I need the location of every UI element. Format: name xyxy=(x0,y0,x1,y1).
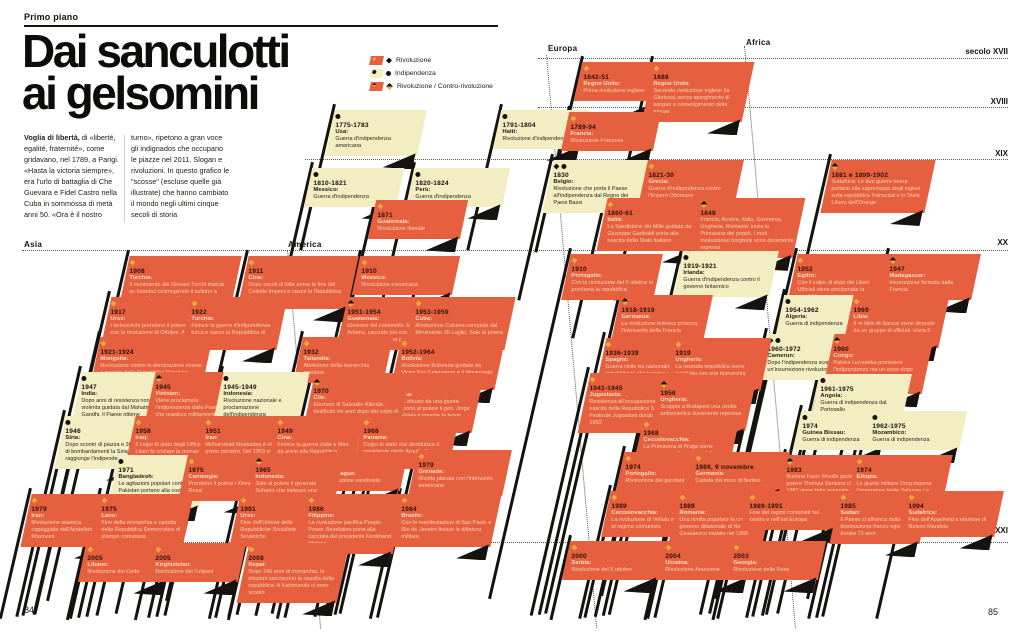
flag-year: 1951 xyxy=(205,428,283,435)
revolution-diamond-icon xyxy=(308,498,314,504)
event-flag: 1910Messico:Rivoluzione messicana xyxy=(352,256,460,295)
flag-place: Serbia: xyxy=(571,560,657,567)
flag-pennant xyxy=(382,153,415,169)
event-flag: 1881 e 1899-1902Sudafrica: Le due guerre… xyxy=(820,160,935,213)
flag-place: Sudafrica: xyxy=(908,510,994,517)
flag-year: 1775-1783 xyxy=(335,122,417,129)
revolution-diamond-icon xyxy=(583,66,589,72)
flag-year: 1917 xyxy=(110,309,195,316)
flag-place: Cuba: xyxy=(415,316,505,323)
flag-icons xyxy=(308,496,394,505)
revolution-diamond-icon xyxy=(205,420,211,426)
flag-place: Francia: xyxy=(570,131,652,138)
flag-content: 1975Laos:Fine della monarchia e nascita … xyxy=(101,496,183,541)
revolution-diamond-icon xyxy=(191,301,197,307)
flag-content: 1775-1783Usa:Guerra d'indipendenza ameri… xyxy=(335,112,417,150)
event-flag: 1947Madagascar:Insurrezione fermata dall… xyxy=(879,254,981,300)
flag-icons xyxy=(223,374,299,383)
counter-revolution-half-diamond-icon xyxy=(833,337,840,344)
flag-icons xyxy=(872,413,958,422)
flag-year: 1932 xyxy=(303,349,383,356)
flag-text: Fine dell'Apartheid e elezione di Nelson… xyxy=(908,517,994,531)
flag-place: Egitto: xyxy=(797,273,879,280)
flag-icons xyxy=(363,418,449,427)
flag-icons xyxy=(65,418,141,427)
flag-content: 1789-94Francia:Rivoluzione Francese xyxy=(570,114,652,145)
flag-icons xyxy=(553,162,639,171)
flag-icons xyxy=(155,374,229,383)
flag-place: Messico: xyxy=(361,275,451,282)
flag-year: 1919 xyxy=(675,350,761,357)
flag-text: Rivoluzione Francese xyxy=(570,138,652,145)
event-flag: 1975Laos:Fine della monarchia e nascita … xyxy=(90,494,193,547)
flag-year: 1994 xyxy=(908,503,994,510)
flag-content: 1919-1921Irlanda:Guerra d'indipendenza c… xyxy=(683,253,769,291)
flag-icons xyxy=(889,256,971,265)
flag-place: Messico: xyxy=(313,187,395,194)
revolution-diamond-icon xyxy=(277,420,283,426)
flag-icons xyxy=(377,202,459,211)
flag-place: Turchia: xyxy=(129,275,231,282)
flag-pennant xyxy=(623,577,656,593)
flag-place: Angola: xyxy=(820,393,902,400)
flag-icons xyxy=(820,376,902,385)
flag-year: 1989, 9 novembre xyxy=(695,464,781,471)
flag-content: 2005Kirghizistan:Rivoluzione dei Tulipan… xyxy=(155,545,237,576)
flag-text: La rivoluzione tedesca provoca l'interve… xyxy=(621,321,703,335)
flag-place: Urss: xyxy=(110,316,195,323)
flag-icons xyxy=(571,543,657,552)
flag-place: Indonesia: xyxy=(255,474,333,481)
flag-year: 1984 xyxy=(401,506,491,513)
flag-pennant xyxy=(456,544,489,560)
independence-circle-icon xyxy=(802,415,807,420)
event-flag: 2000Serbia:Rivoluzione del 5 ottobre xyxy=(562,541,666,580)
independence-circle-icon xyxy=(683,255,688,260)
revolution-diamond-icon xyxy=(605,342,611,348)
flag-icons xyxy=(733,543,817,552)
flag-content: 2003Georgia:Rivoluzione delle Rose xyxy=(733,543,817,574)
flag-pennant xyxy=(242,347,275,363)
flag-place: Belgio: xyxy=(553,179,639,186)
flag-year: 1952-1964 xyxy=(401,349,495,356)
flag-icons xyxy=(797,256,879,265)
revolution-diamond-icon xyxy=(129,260,135,266)
flag-place: Regno Unito: xyxy=(653,81,743,88)
counter-revolution-half-diamond-icon xyxy=(786,458,793,465)
flag-content: 1918-1919Germania:La rivoluzione tedesca… xyxy=(621,297,703,335)
revolution-diamond-icon xyxy=(856,459,862,465)
flag-text: Rivolta placata con l'intervento america… xyxy=(418,476,502,490)
flag-content: 1820-1824Perù:Guerra d'indipendenza xyxy=(415,170,501,201)
revolution-diamond-icon xyxy=(155,547,161,553)
revolution-diamond-icon xyxy=(679,495,685,501)
flag-place: Ungheria: xyxy=(675,357,761,364)
flag-year: 1881 e 1899-1902 xyxy=(831,172,925,179)
flag-place: Nepal: xyxy=(248,562,338,569)
flag-place: Panama: xyxy=(363,435,449,442)
flag-text: Insurrezione fermata dalla Francia xyxy=(889,280,971,294)
flag-content: 1962-1975Mozambico:Guerra di indipendenz… xyxy=(872,413,958,444)
flag-text: Guerra d'indipendenza contro il governo … xyxy=(683,277,769,291)
flag-year: 1965 xyxy=(255,467,333,474)
flag-icons xyxy=(205,418,283,427)
flag-text: Dopo 240 anni di monarchia, le elezioni … xyxy=(248,569,338,597)
flag-text: Con le manifestazioni di San Paolo e Rio… xyxy=(401,520,491,541)
flag-year: 2005 xyxy=(155,555,237,562)
flag-icons xyxy=(853,297,939,306)
flag-content: 1688Regno Unito:Seconda rivoluzione ingl… xyxy=(653,64,743,116)
flag-content: 1989, 9 novembreGermania:Caduta del muro… xyxy=(695,454,781,485)
revolution-diamond-icon xyxy=(571,545,577,551)
flag-year: 1945-1949 xyxy=(223,384,299,391)
flag-text: La Spedizione dei Mille guidata da Giuse… xyxy=(607,224,697,245)
flag-year: 1970 xyxy=(313,388,399,395)
flag-year: 1975 xyxy=(188,467,258,474)
flag-text: Sudafrica: Le due guerre boere portano a… xyxy=(831,179,925,207)
flag-pennant xyxy=(707,119,740,135)
flag-icons xyxy=(700,200,794,209)
flag-icons xyxy=(401,496,491,505)
counter-revolution-half-diamond-icon xyxy=(347,300,354,307)
flag-icons xyxy=(361,258,451,267)
independence-circle-icon xyxy=(415,172,420,177)
counter-revolution-half-diamond-icon xyxy=(700,201,707,208)
flag-place: Mozambico: xyxy=(872,430,958,437)
flag-icons xyxy=(191,299,277,308)
flag-text: Guerra d'indipendenza americana xyxy=(335,136,417,150)
flag-icons xyxy=(100,339,202,348)
revolution-diamond-icon xyxy=(675,342,681,348)
event-flag: 2005Kirghizistan:Rivoluzione dei Tulipan… xyxy=(146,543,246,582)
flag-icons xyxy=(643,420,729,429)
flag-year: 1962-1975 xyxy=(872,423,958,430)
flag-icons xyxy=(653,64,743,73)
flag-icons xyxy=(155,545,237,554)
revolution-diamond-icon xyxy=(908,495,914,501)
revolution-diamond-icon xyxy=(135,420,141,426)
flag-year: 1952 xyxy=(797,266,879,273)
flag-place: Mongolia: xyxy=(100,356,202,363)
event-flag: 1989, 9 novembreGermania:Caduta del muro… xyxy=(686,452,790,491)
independence-circle-icon xyxy=(561,164,566,169)
flag-place: Etiopia: xyxy=(856,474,942,481)
flag-year: 1975 xyxy=(101,506,183,513)
flag-year: 1968 xyxy=(363,428,449,435)
flag-content: 1945-1949Indonesia:Rivoluzione nazionale… xyxy=(223,374,299,419)
revolution-diamond-icon xyxy=(648,164,654,170)
flag-place: Cile: xyxy=(313,395,399,402)
revolution-diamond-icon xyxy=(248,547,254,553)
flag-place: Ungheria: xyxy=(660,397,746,404)
counter-revolution-half-diamond-icon xyxy=(831,163,838,170)
flag-content: 1810-1821Messico:Guerra d'indipendenza xyxy=(313,170,395,201)
flag-text: Rivoluzione messicana xyxy=(361,282,451,289)
independence-circle-icon xyxy=(223,376,228,381)
flag-year: 1968 xyxy=(643,430,729,437)
flag-pennant xyxy=(467,204,500,220)
flag-icons xyxy=(248,258,348,267)
revolution-diamond-icon xyxy=(570,116,576,122)
flag-place: Tailandia: xyxy=(303,356,383,363)
flag-year: 1960 xyxy=(833,346,923,353)
flag-content: 1989-1991Fine dei regimi comunisti nel c… xyxy=(749,493,835,524)
flag-year: 1922 xyxy=(191,309,277,316)
independence-circle-icon xyxy=(313,172,318,177)
independence-circle-icon xyxy=(81,376,86,381)
flag-text: Fine dei regimi comunisti nel centro e n… xyxy=(749,510,835,524)
flag-place: Laos: xyxy=(101,513,183,520)
flag-place: India: xyxy=(81,391,159,398)
flag-place: Bolivia: xyxy=(401,356,495,363)
independence-circle-icon xyxy=(335,114,340,119)
counter-revolution-half-diamond-icon xyxy=(621,298,628,305)
flag-year: 1949 xyxy=(277,428,353,435)
flag-year: 1871 xyxy=(377,212,459,219)
flag-content: 1979Grenada:Rivolta placata con l'interv… xyxy=(418,452,502,490)
flag-place: Grecia: xyxy=(648,179,734,186)
flag-icons xyxy=(571,256,653,265)
event-flag: 1919-1921Irlanda:Guerra d'indipendenza c… xyxy=(673,251,779,297)
event-flag: 1979Grenada:Rivolta placata con l'interv… xyxy=(408,450,512,496)
counter-revolution-half-diamond-icon xyxy=(313,379,320,386)
flag-year: 1986 xyxy=(308,506,394,513)
flag-year: 1688 xyxy=(653,74,743,81)
flag-icons xyxy=(695,454,781,463)
event-flag: 1789-94Francia:Rivoluzione Francese xyxy=(561,112,661,151)
flag-year: 1945 xyxy=(155,384,229,391)
flag-text: Con la rivoluzione del 5 ottobre si proc… xyxy=(571,280,653,294)
flag-place: Irlanda: xyxy=(683,270,769,277)
flag-year: 1961-1975 xyxy=(820,386,902,393)
revolution-diamond-icon xyxy=(418,454,424,460)
flag-content: 1871Guatemala:Rivoluzione liberale xyxy=(377,202,459,233)
revolution-diamond-icon xyxy=(101,498,107,504)
flag-icons xyxy=(277,418,353,427)
flag-place: Cina: xyxy=(248,275,348,282)
flag-pennant xyxy=(890,210,923,226)
independence-circle-icon xyxy=(820,378,825,383)
flag-icons xyxy=(313,170,395,179)
revolution-diamond-icon xyxy=(840,495,846,501)
flag-year: 1946 xyxy=(65,428,141,435)
flag-place: Cecoslovacchia: xyxy=(643,437,729,444)
flag-year: 1830 xyxy=(553,172,639,179)
flag-year: 1810-1821 xyxy=(313,180,395,187)
flag-icons xyxy=(621,297,703,306)
flag-content: 1994Sudafrica:Fine dell'Apartheid e elez… xyxy=(908,493,994,531)
flag-icons xyxy=(648,162,734,171)
event-flag: 1910Portogallo:Con la rivoluzione del 5 … xyxy=(561,254,663,300)
flag-icons xyxy=(129,258,231,267)
flag-year: 1910 xyxy=(361,268,451,275)
flag-icons xyxy=(831,162,925,171)
flag-place: Madagascar: xyxy=(889,273,971,280)
flag-year: 1921-1924 xyxy=(100,349,202,356)
event-flag: 2003Georgia:Rivoluzione delle Rose xyxy=(724,541,826,580)
counter-revolution-half-diamond-icon xyxy=(660,381,667,388)
flag-icons xyxy=(335,112,417,121)
revolution-diamond-icon xyxy=(240,498,246,504)
revolution-diamond-icon xyxy=(303,341,309,347)
flag-icons xyxy=(749,493,835,502)
event-flag: 1775-1783Usa:Guerra d'indipendenza ameri… xyxy=(325,110,427,156)
flag-place: Kirghizistan: xyxy=(155,562,237,569)
revolution-diamond-icon xyxy=(248,260,254,266)
flag-pennant xyxy=(885,541,918,557)
flag-place: Italia: xyxy=(607,217,697,224)
independence-circle-icon xyxy=(502,114,507,119)
flag-icons xyxy=(313,378,399,387)
flag-content: 1910Messico:Rivoluzione messicana xyxy=(361,258,451,289)
flag-year: 1908 xyxy=(129,268,231,275)
flag-icons xyxy=(683,253,769,262)
counter-revolution-half-diamond-icon xyxy=(889,257,896,264)
flag-place: Congo: xyxy=(833,353,923,360)
magazine-spread: Primo piano Dai sanculotti ai gelsomini … xyxy=(0,0,1024,632)
flag-text: Francia, Austria, Italia, Germania, Ungh… xyxy=(700,217,794,252)
revolution-diamond-icon xyxy=(607,202,613,208)
flag-pennant xyxy=(959,534,992,550)
flag-place: Usa: xyxy=(335,129,417,136)
flag-icons xyxy=(570,114,652,123)
flag-year: 2000 xyxy=(571,553,657,560)
flag-year: 1848 xyxy=(700,210,794,217)
revolution-diamond-icon xyxy=(110,301,116,307)
flag-text: Fine della monarchia e nascita della Rep… xyxy=(101,520,183,541)
flag-content: 1961-1975Angola:Guerra di indipendenza d… xyxy=(820,376,902,414)
revolution-diamond-icon xyxy=(643,422,649,428)
event-flags-layer: 1642-51Regno Unito:Prima rivoluzione ing… xyxy=(0,0,1024,632)
revolution-diamond-icon xyxy=(695,456,701,462)
flag-year: 1910 xyxy=(571,266,653,273)
event-flag: 1984Brasile:Con le manifestazioni di San… xyxy=(390,494,501,547)
event-flag: 1989-1991Fine dei regimi comunisti nel c… xyxy=(740,491,844,530)
flag-text: Rivoluzione del 5 ottobre xyxy=(571,567,657,574)
revolution-diamond-icon xyxy=(625,456,631,462)
flag-icons xyxy=(415,170,501,179)
flag-year: 1820-1824 xyxy=(415,180,501,187)
flag-icons xyxy=(248,545,338,554)
flag-content: 2008Nepal:Dopo 240 anni di monarchia, le… xyxy=(248,545,338,597)
flag-year: 1860-61 xyxy=(607,210,697,217)
flag-place: Brasile: xyxy=(401,513,491,520)
revolution-diamond-icon xyxy=(611,495,617,501)
event-flag: 1871Guatemala:Rivoluzione liberale xyxy=(368,200,468,239)
flag-icons xyxy=(31,496,109,505)
flag-year: 1974 xyxy=(856,467,942,474)
flag-text: Seconda rivoluzione inglese (la Gloriosa… xyxy=(653,88,743,116)
revolution-diamond-icon xyxy=(853,299,859,305)
independence-circle-icon xyxy=(785,299,790,304)
flag-year: 1947 xyxy=(81,384,159,391)
flag-content: 1984Brasile:Con le manifestazioni di San… xyxy=(401,496,491,541)
flag-icons xyxy=(255,457,333,466)
revolution-diamond-icon xyxy=(665,545,671,551)
flag-year: 1918-1919 xyxy=(621,307,703,314)
revolution-diamond-icon xyxy=(749,495,755,501)
flag-place: Indonesia: xyxy=(223,391,299,398)
flag-icons xyxy=(833,336,923,345)
flag-icons xyxy=(908,493,994,502)
flag-year: 1919-1921 xyxy=(683,263,769,270)
revolution-diamond-icon xyxy=(653,66,659,72)
revolution-diamond-icon xyxy=(589,377,595,383)
flag-icons xyxy=(401,339,495,348)
revolution-diamond-icon xyxy=(571,258,577,264)
flag-icons xyxy=(660,380,746,389)
flag-text: Caduta del muro di Berlino xyxy=(695,478,781,485)
event-flag: 1962-1975Mozambico:Guerra di indipendenz… xyxy=(863,411,967,450)
revolution-diamond-icon xyxy=(553,164,559,170)
revolution-diamond-icon xyxy=(188,459,194,465)
flag-text: Rivoluzione dei Tulipani xyxy=(155,569,237,576)
revolution-diamond-icon xyxy=(401,341,407,347)
flag-icons xyxy=(418,452,502,461)
flag-content: 1947Madagascar:Insurrezione fermata dall… xyxy=(889,256,971,294)
flag-content: 1932Tailandia:Abolizione della monarchia… xyxy=(303,339,383,377)
flag-icons xyxy=(675,340,761,349)
flag-text: Guerra di indipendenza xyxy=(872,437,958,444)
flag-place: Libia: xyxy=(853,314,939,321)
flag-text: Rivoluzione liberale xyxy=(377,226,459,233)
independence-circle-icon xyxy=(65,420,70,425)
flag-content: 1986Filippine:La rivoluzione pacifica Pe… xyxy=(308,496,394,548)
flag-pennant xyxy=(302,600,335,616)
revolution-diamond-icon xyxy=(415,301,421,307)
flag-pennant xyxy=(734,294,767,310)
flag-content: 1821-30Grecia:Guerra d'indipendenza cont… xyxy=(648,162,734,200)
flag-place: Germania: xyxy=(695,471,781,478)
counter-revolution-half-diamond-icon xyxy=(155,375,162,382)
flag-content: 1848Francia, Austria, Italia, Germania, … xyxy=(700,200,794,252)
counter-revolution-half-diamond-icon xyxy=(255,458,262,465)
flag-icons xyxy=(415,299,505,308)
flag-icons xyxy=(856,457,942,466)
flag-pennant xyxy=(358,551,391,567)
event-flag: 2008Nepal:Dopo 240 anni di monarchia, le… xyxy=(237,543,350,603)
flag-pennant xyxy=(203,579,236,595)
flag-pennant xyxy=(425,236,458,252)
flag-pennant xyxy=(783,577,816,593)
flag-icons xyxy=(607,200,697,209)
event-flag: 1918-1919Germania:La rivoluzione tedesca… xyxy=(611,295,713,341)
flag-year: 1989-1991 xyxy=(749,503,835,510)
flag-place: Guatemala: xyxy=(377,219,459,226)
event-flag: 1994Sudafrica:Fine dell'Apartheid e elez… xyxy=(898,491,1004,537)
flag-icons xyxy=(81,374,159,383)
revolution-diamond-icon xyxy=(87,547,93,553)
flag-place: Cambogia: xyxy=(188,474,258,481)
flag-year: 1979 xyxy=(418,462,502,469)
flag-icons xyxy=(303,339,383,348)
flag-place: Perù: xyxy=(415,187,501,194)
flag-year: 2003 xyxy=(733,553,817,560)
flag-place: Filippine: xyxy=(308,513,394,520)
flag-content: 2000Serbia:Rivoluzione del 5 ottobre xyxy=(571,543,657,574)
flag-content: 1910Portogallo:Con la rivoluzione del 5 … xyxy=(571,256,653,294)
revolution-diamond-icon xyxy=(31,498,37,504)
flag-place: Grenada: xyxy=(418,469,502,476)
revolution-diamond-icon xyxy=(361,260,367,266)
independence-circle-icon xyxy=(872,415,877,420)
revolution-diamond-icon xyxy=(363,420,369,426)
revolution-diamond-icon xyxy=(797,258,803,264)
flag-place: Germania: xyxy=(621,314,703,321)
flag-icons xyxy=(110,299,195,308)
flag-year: 2008 xyxy=(248,555,338,562)
flag-year: 1956 xyxy=(660,390,746,397)
